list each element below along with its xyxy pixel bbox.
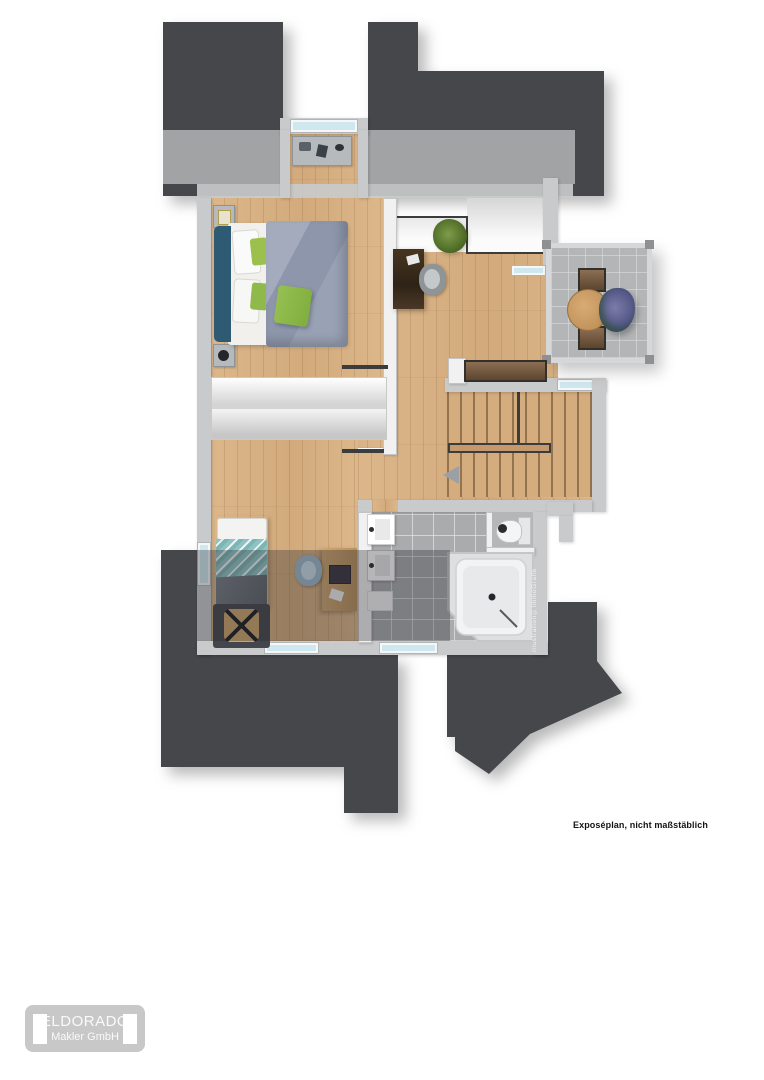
logo-text: ELDORADO Makler GmbH (41, 1014, 129, 1043)
plan-caption: Exposéplan, nicht maßstäblich (573, 820, 708, 830)
logo-bar-left (33, 1014, 47, 1044)
corner-shower (0, 0, 764, 1080)
logo-bar-right (123, 1014, 137, 1044)
roof-slope-shading (197, 550, 450, 641)
logo-subtitle: Makler GmbH (41, 1031, 129, 1043)
floor-plan-page: Illustration©ImmoGrafik Exposéplan, nich… (0, 0, 764, 1080)
company-logo: ELDORADO Makler GmbH (25, 1005, 145, 1052)
watermark-text: Illustration©ImmoGrafik (531, 556, 538, 652)
logo-company-name: ELDORADO (41, 1014, 129, 1031)
